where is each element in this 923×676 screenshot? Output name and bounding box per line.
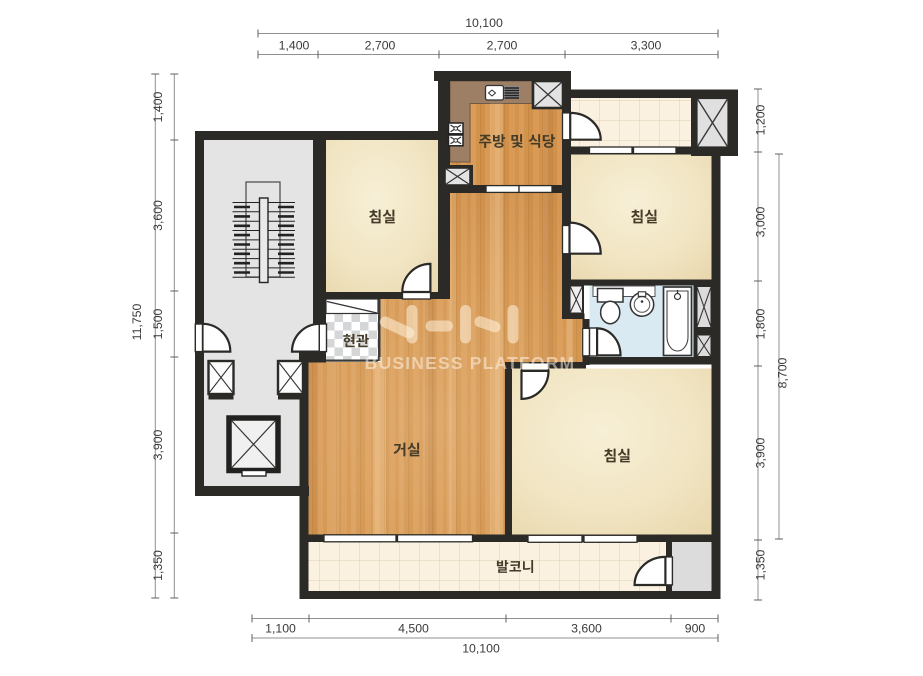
svg-text:1,350: 1,350	[754, 549, 768, 580]
svg-text:900: 900	[685, 622, 706, 636]
svg-text:3,600: 3,600	[571, 622, 602, 636]
svg-text:1,500: 1,500	[151, 308, 165, 339]
svg-text:3,900: 3,900	[754, 437, 768, 468]
svg-text:BUSINESS PLATFORM: BUSINESS PLATFORM	[365, 353, 576, 373]
svg-text:1,800: 1,800	[754, 308, 768, 339]
svg-text:1,400: 1,400	[279, 39, 310, 53]
svg-text:1,200: 1,200	[754, 104, 768, 135]
svg-text:3,600: 3,600	[151, 200, 165, 231]
svg-text:1,100: 1,100	[265, 622, 296, 636]
svg-text:11,750: 11,750	[130, 303, 144, 340]
svg-text:10,100: 10,100	[465, 16, 503, 30]
svg-text:2,700: 2,700	[365, 39, 396, 53]
svg-text:3,000: 3,000	[754, 206, 768, 237]
svg-text:4,500: 4,500	[398, 622, 429, 636]
svg-text:10,100: 10,100	[462, 642, 500, 656]
svg-text:8,700: 8,700	[776, 357, 790, 388]
svg-text:3,900: 3,900	[151, 429, 165, 460]
svg-text:1,350: 1,350	[151, 550, 165, 581]
svg-text:1,400: 1,400	[151, 91, 165, 122]
svg-text:2,700: 2,700	[487, 39, 518, 53]
svg-text:3,300: 3,300	[631, 39, 662, 53]
